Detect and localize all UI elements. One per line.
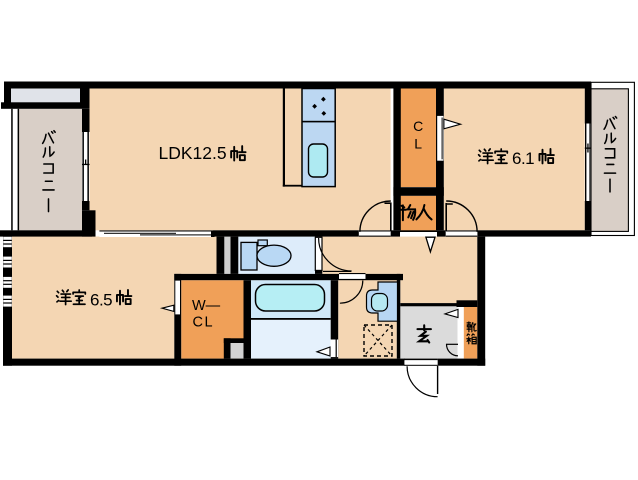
- svg-text:W—: W—: [192, 298, 221, 314]
- svg-text:CL: CL: [193, 315, 215, 331]
- svg-text:LDK12.5: LDK12.5: [159, 143, 227, 163]
- svg-text:6.1: 6.1: [512, 149, 534, 168]
- svg-text:C: C: [413, 118, 423, 134]
- svg-text:6.5: 6.5: [90, 291, 112, 310]
- svg-text:L: L: [414, 136, 422, 152]
